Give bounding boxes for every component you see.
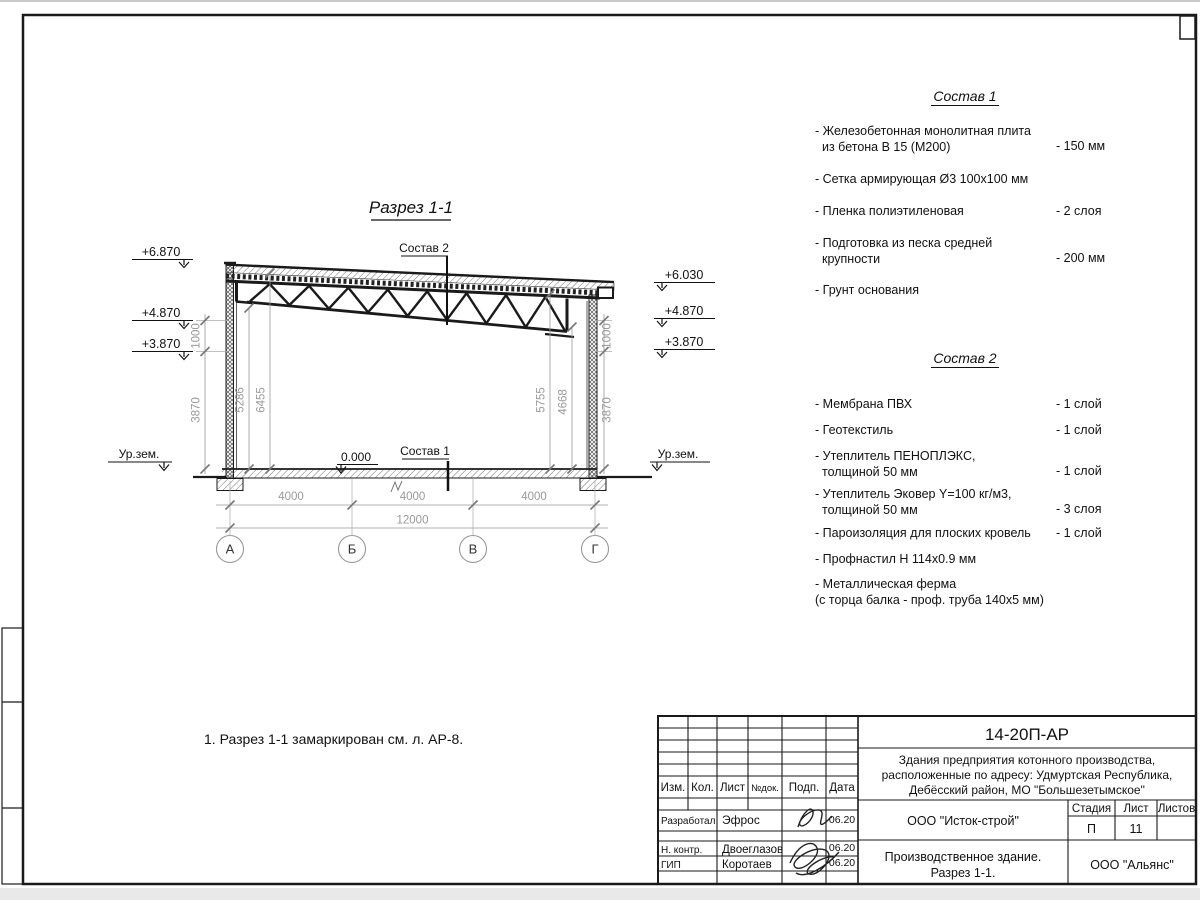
spec-value: - 2 слоя (1056, 204, 1101, 220)
sostav1-title: Состав 1 (815, 88, 1115, 104)
svg-text:0.000: 0.000 (341, 450, 371, 464)
doc-number: 14-20П-АР (985, 725, 1069, 744)
dim-inner-5755: 5755 (536, 387, 548, 413)
row3-role: ГИП (661, 860, 681, 871)
sostav2-title: Состав 2 (815, 350, 1115, 366)
elevation-marks-left: +6.870 +4.870 +3.870 (132, 245, 193, 360)
spec-item: - Пароизоляция для плоских кровель - 1 с… (815, 526, 1125, 542)
dim-right-1000: 1000 (602, 323, 614, 349)
project-desc-line1: Здания предприятия котонного производств… (899, 753, 1155, 767)
floor-slab (222, 469, 597, 492)
dim-span-3: 4000 (521, 491, 547, 503)
spec-value: - 3 слоя (1056, 502, 1101, 518)
col-list: Лист (720, 782, 746, 794)
roof-package (226, 265, 614, 299)
dim-inner-4668: 4668 (558, 389, 570, 415)
sheet-note: 1. Разрез 1-1 замаркирован см. л. АР-8. (204, 731, 463, 747)
col-izm: Изм. (661, 782, 686, 794)
col-podp: Подп. (789, 782, 820, 794)
spec-item: - Геотекстиль - 1 слой (815, 423, 1125, 439)
svg-text:Ур.зем.: Ур.зем. (658, 447, 699, 461)
dim-left-1000: 1000 (191, 323, 203, 349)
contractor-name: ООО "Альянс" (1090, 858, 1174, 872)
spec-item: - Утеплитель ПЕНОПЛЭКС, толщиной 50 мм -… (815, 449, 1125, 480)
spec-value: - 1 слой (1056, 526, 1102, 542)
sheet-label: Лист (1124, 803, 1150, 815)
elevation-right-1: +6.030 (665, 268, 704, 282)
elevation-right-3: +3.870 (665, 335, 704, 349)
elevation-left-2: +4.870 (142, 306, 181, 320)
dim-total: 12000 (397, 515, 429, 527)
spec-item: - Сетка армирующая Ø3 100х100 мм (815, 172, 1125, 188)
dim-span-2: 4000 (400, 491, 426, 503)
elevation-right-2: +4.870 (665, 304, 704, 318)
spec-item: - Подготовка из песка средней крупности … (815, 236, 1125, 267)
spec-item: - Грунт основания (815, 283, 1125, 299)
spec-value: - 1 слой (1056, 464, 1102, 480)
sostav1-callout: Состав 1 (400, 444, 450, 491)
left-wall (224, 263, 237, 478)
sostav2-label: Состав 2 (399, 241, 449, 255)
row1-date: 06.20 (829, 814, 855, 826)
dim-inner-5286: 5286 (235, 387, 247, 413)
col-data: Дата (829, 782, 855, 794)
axis-a: А (226, 542, 235, 557)
dim-left-3870: 3870 (191, 397, 203, 423)
section-title: Разрез 1-1 (369, 198, 453, 217)
row1-name: Эфрос (722, 813, 760, 827)
axis-v: В (469, 542, 478, 557)
row2-name: Двоеглазов (722, 844, 783, 856)
spec-item: - Железобетонная монолитная плита из бет… (815, 124, 1125, 155)
object-line2: Разрез 1-1. (931, 866, 996, 880)
stage-value: П (1087, 822, 1096, 836)
axis-b: Б (348, 542, 357, 557)
sheets-label: Листов (1158, 803, 1195, 815)
dim-span-1: 4000 (278, 491, 304, 503)
stage-label: Стадия (1072, 803, 1111, 815)
frame-left-cells (2, 628, 23, 884)
spec-item: - Профнастил Н 114х0.9 мм (815, 552, 1125, 568)
elevation-marks-right: +6.030 +4.870 +3.870 (654, 268, 715, 358)
col-kol: Кол. (691, 782, 714, 794)
footing-right (580, 479, 606, 491)
row1-role: Разработал (661, 815, 716, 827)
ground-mark-right: Ур.зем. (650, 447, 710, 471)
edge-beam-tube (598, 288, 613, 299)
row3-name: Коротаев (722, 859, 772, 871)
drawing-sheet: Разрез 1-1 (0, 0, 1200, 900)
ground-mark-left: Ур.зем. (108, 447, 172, 471)
row2-date: 06.20 (829, 842, 855, 854)
sostav1-label: Состав 1 (400, 444, 450, 458)
project-desc-line3: Дебёсский район, МО "Большезетымское" (909, 783, 1145, 797)
frame-corner-box (1180, 16, 1195, 39)
right-wall (587, 295, 597, 478)
elevation-left-3: +3.870 (142, 337, 181, 351)
spec-item: - Пленка полиэтиленовая - 2 слоя (815, 204, 1125, 220)
dim-inner-6455: 6455 (256, 387, 268, 413)
axis-g: Г (591, 542, 598, 557)
spec-value: - 1 слой (1056, 397, 1102, 413)
spec-value: - 1 слой (1056, 423, 1102, 439)
bottom-dimensions: 4000 4000 4000 12000 А Б В Г (216, 479, 609, 563)
elevation-left-1: +6.870 (142, 245, 181, 259)
col-ndok: №док. (751, 783, 779, 794)
title-block: 14-20П-АР Здания предприятия котонного п… (658, 716, 1196, 884)
org-name: ООО "Исток-строй" (907, 814, 1019, 828)
spec-item: - Мембрана ПВХ - 1 слой (815, 397, 1125, 413)
dim-right-3870: 3870 (602, 397, 614, 423)
svg-text:Ур.зем.: Ур.зем. (119, 447, 160, 461)
project-desc-line2: расположенные по адресу: Удмуртская Респ… (882, 768, 1173, 782)
sheet-value: 11 (1130, 822, 1143, 836)
section-drawing: Разрез 1-1 (108, 198, 715, 563)
axis-bubbles: А Б В Г (217, 536, 609, 563)
spec-value: - 150 мм (1056, 139, 1105, 155)
row2-role: Н. контр. (661, 845, 702, 856)
spec-value: - 200 мм (1056, 251, 1105, 267)
spec-item: - Металлическая ферма (с торца балка - п… (815, 577, 1125, 608)
spec-item: - Утеплитель Эковер Y=100 кг/м3, толщино… (815, 487, 1125, 518)
object-line1: Производственное здание. (885, 850, 1042, 864)
